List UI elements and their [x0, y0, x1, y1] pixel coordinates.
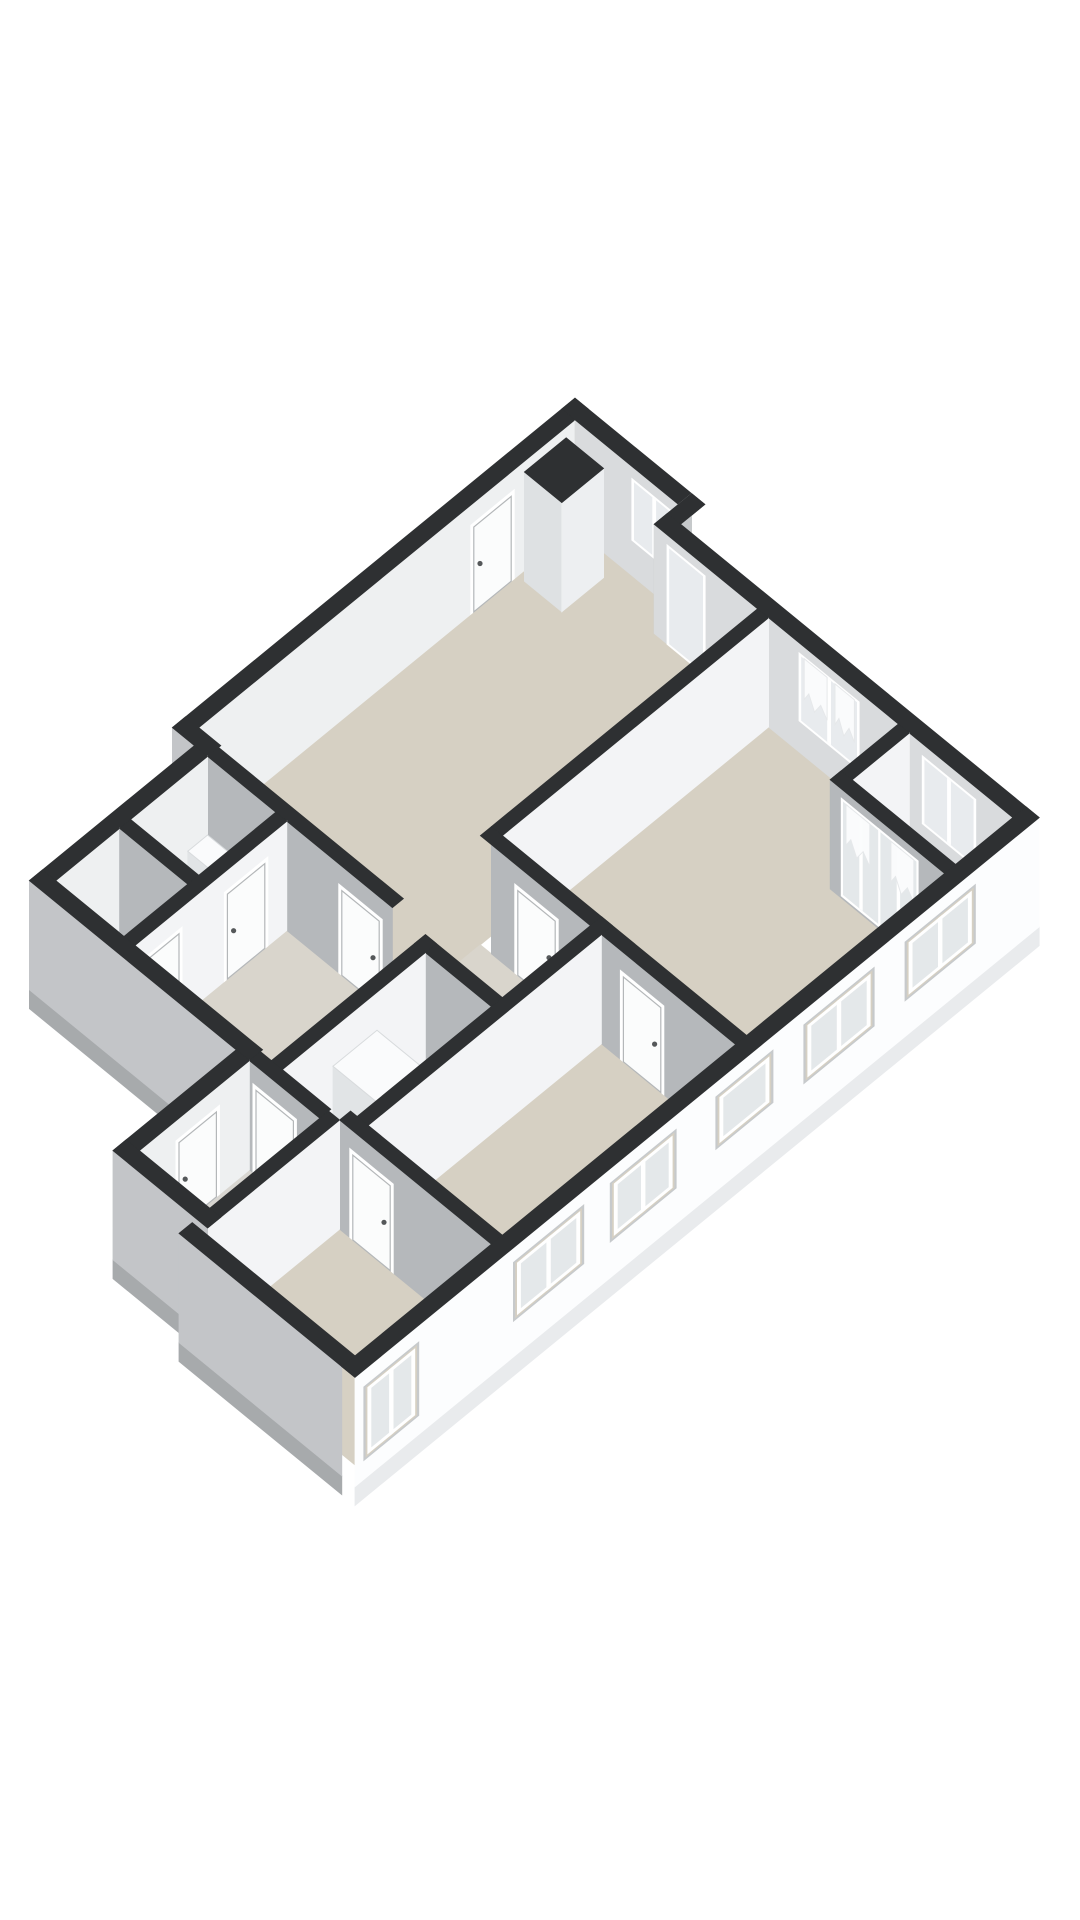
window-bedroom1-top-mullion: [828, 679, 831, 745]
window-niche-top-mullion: [948, 779, 951, 845]
facade-window-niche-mullion: [938, 916, 942, 970]
facade-window-bedroom1-mullion: [837, 998, 841, 1052]
door-entry-gallery-handle-icon: [477, 561, 482, 566]
page: [0, 0, 1080, 1920]
facade-window-bedroom2-b-mullion: [547, 1236, 551, 1290]
door-bathroom-handle-icon: [231, 928, 236, 933]
facade-window-bedroom2-a-mullion: [641, 1159, 645, 1213]
door-living-hall-handle-icon: [370, 955, 375, 960]
floor-plan-canvas: [0, 0, 1080, 1920]
door-bedroom-3-handle-icon: [381, 1220, 386, 1225]
door-main-entrance-handle-icon: [183, 1177, 188, 1182]
door-bedroom-2-handle-icon: [652, 1042, 657, 1047]
facade-window-bedroom3-mullion: [390, 1367, 394, 1436]
